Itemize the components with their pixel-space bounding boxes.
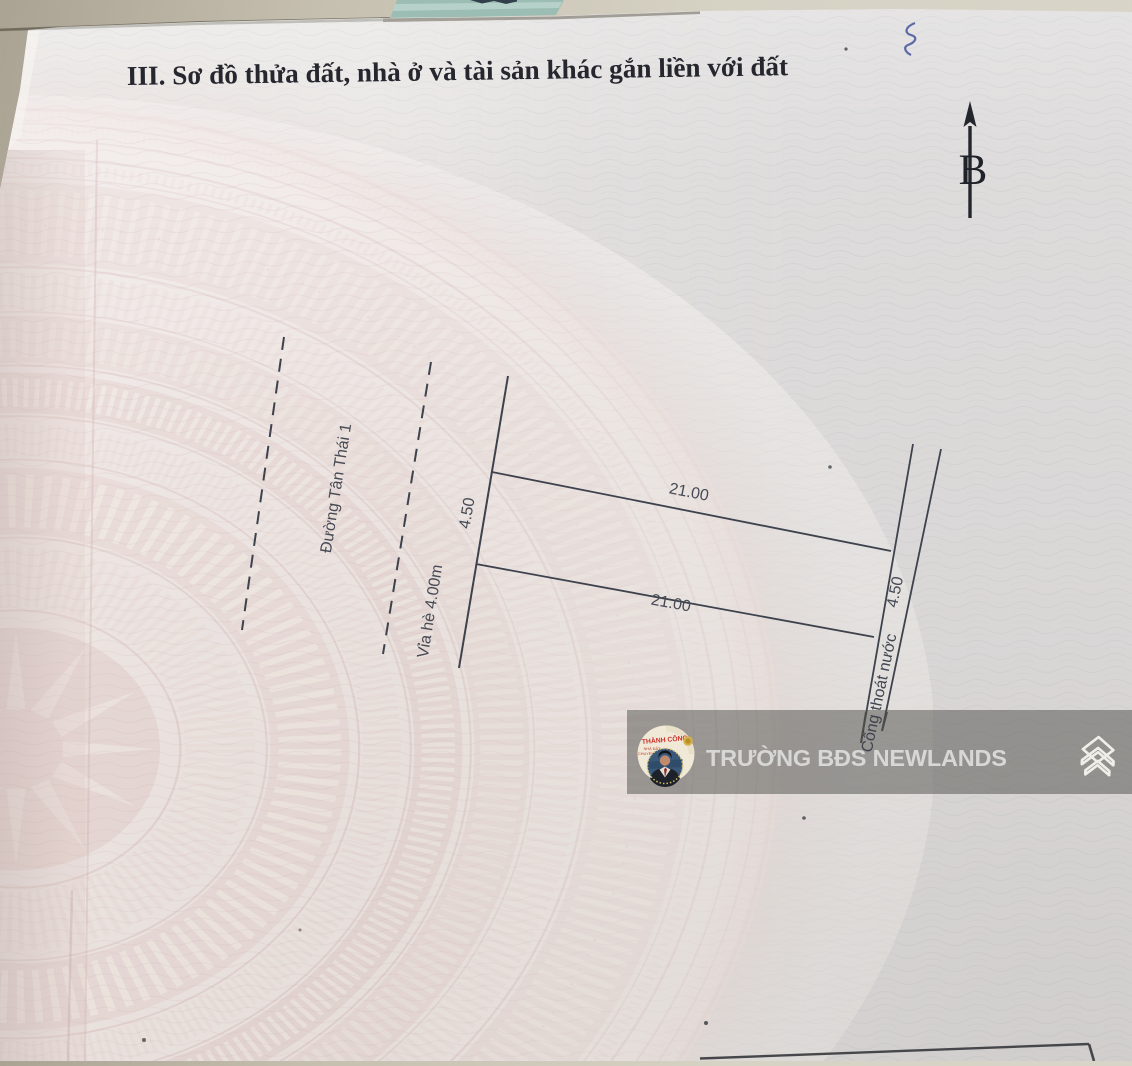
svg-text:B: B bbox=[959, 147, 988, 194]
svg-text:TRƯỜNG BĐS NEWLANDS: TRƯỜNG BĐS NEWLANDS bbox=[706, 744, 1007, 771]
